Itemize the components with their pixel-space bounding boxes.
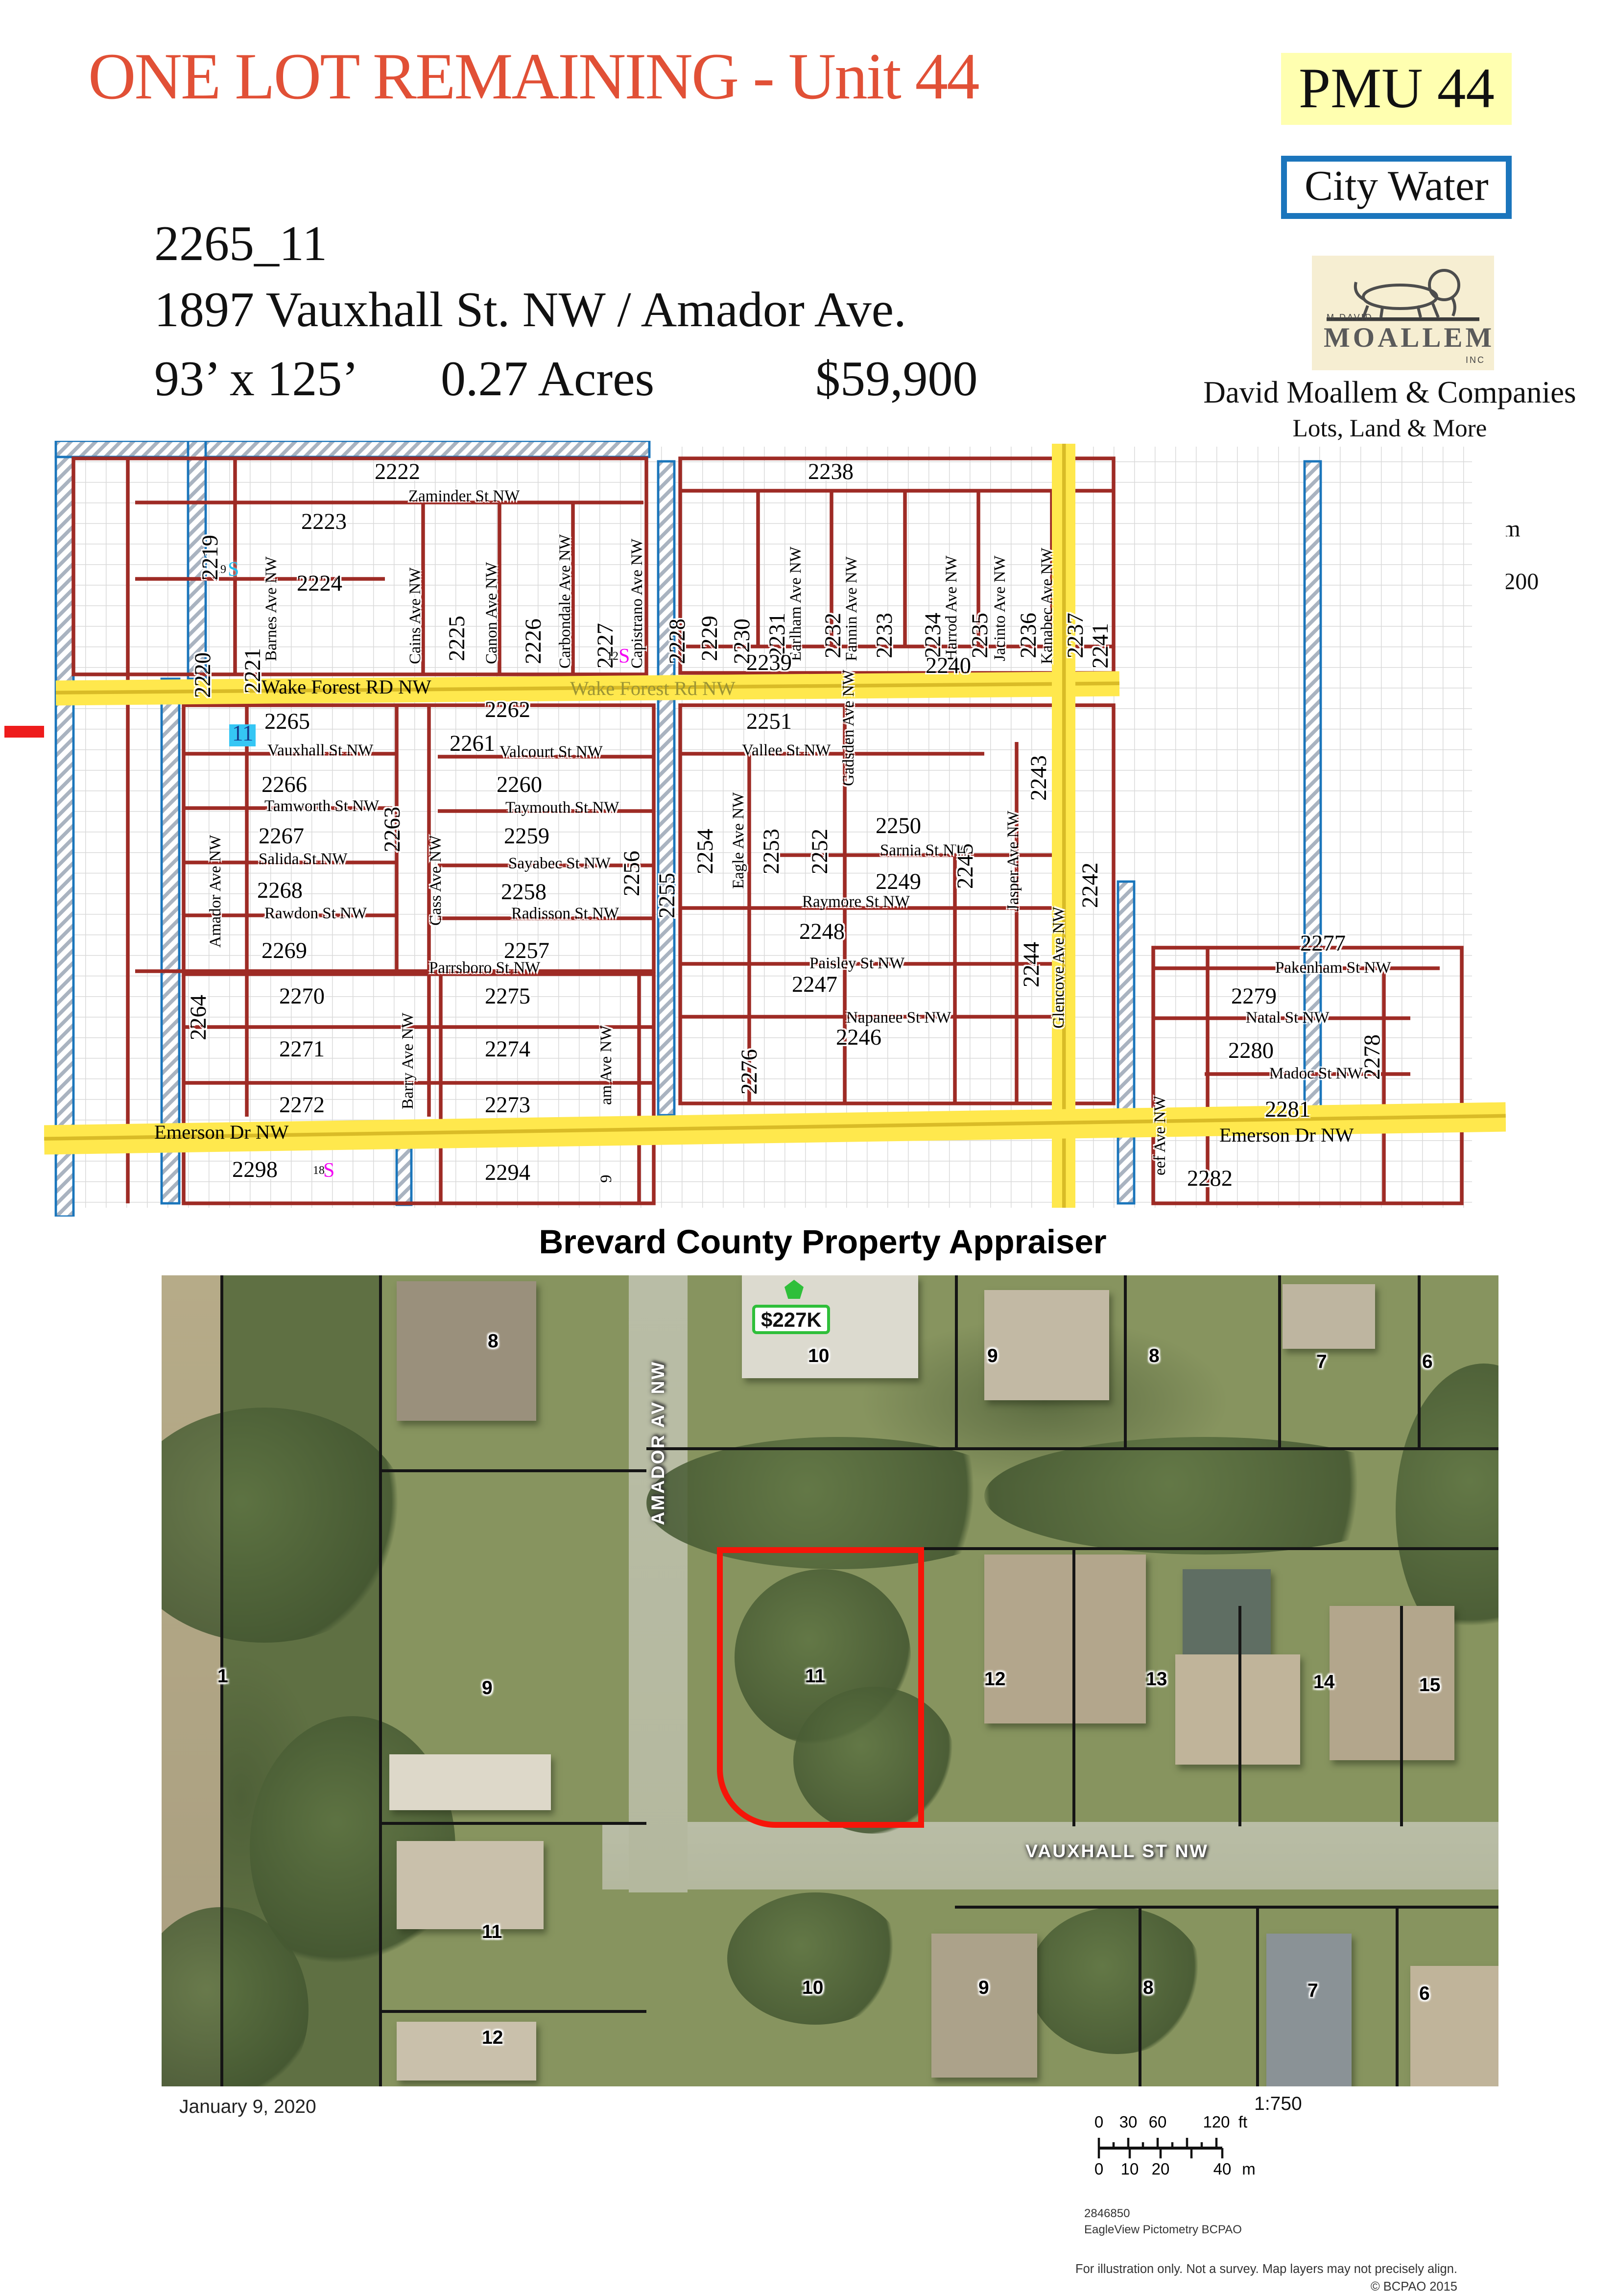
lot-price: $59,900 xyxy=(815,353,978,408)
pmu-badge: PMU 44 xyxy=(1281,53,1512,125)
plat-map-label: 2219 xyxy=(200,535,223,580)
plat-map-label: 2268 xyxy=(257,880,303,903)
aerial-label: VAUXHALL ST NW xyxy=(1025,1842,1209,1861)
plat-map-label: 2269 xyxy=(261,940,307,963)
plat-map-label: 2224 xyxy=(297,573,342,596)
plat-map-label: 2266 xyxy=(261,774,307,797)
plat-map-label: S xyxy=(228,561,239,582)
photo-source: EagleView Pictometry BCPAO xyxy=(1084,2223,1242,2238)
plat-map-label: Jasper Ave NW xyxy=(1006,811,1022,911)
plat-map-label: 2282 xyxy=(1187,1168,1233,1191)
plat-map-label: Canon Ave NW xyxy=(485,562,501,664)
plat-map-label: Gadsden Ave NW xyxy=(842,670,858,786)
plat-map-label: 2261 xyxy=(450,733,495,756)
plat-map-label: 2222 xyxy=(375,461,420,484)
plat-map-label: 2250 xyxy=(876,815,921,838)
plat-map-label: 2294 xyxy=(485,1162,530,1185)
plat-map-label: 2232 xyxy=(823,613,846,658)
plat-map-label: Vallee St NW xyxy=(742,743,831,760)
plat-map-label: 2267 xyxy=(259,826,304,849)
plat-map-label: Harrod Ave NW xyxy=(945,555,961,661)
plat-map-label: Earlham Ave NW xyxy=(789,547,805,661)
plat-map-label: 2272 xyxy=(279,1095,325,1118)
plat-map-label: 2244 xyxy=(1021,942,1044,987)
company-name: David Moallem & Companies xyxy=(1168,375,1612,411)
logo-subtext: M DAVID xyxy=(1327,314,1373,323)
plat-map-label: 2273 xyxy=(485,1095,530,1118)
plat-map-label: 11 xyxy=(229,724,256,746)
lot-dimensions: 93’ x 125’ xyxy=(154,353,358,408)
aerial-label: 1 xyxy=(217,1666,228,1685)
plat-map-label: Vauxhall St NW xyxy=(267,743,373,760)
scale-m-tick: 0 xyxy=(1094,2163,1103,2179)
plat-map-label: 2245 xyxy=(955,843,978,889)
price-badge[interactable]: $227K xyxy=(752,1305,831,1334)
plat-map-label: 2251 xyxy=(746,711,792,734)
plat-map: 2222Zaminder St NW2223222419S22192220222… xyxy=(44,441,1506,1217)
plat-map-label: 2223 xyxy=(301,511,347,534)
plat-map-label: 2262 xyxy=(485,699,530,722)
plat-map-label: Glencove Ave NW xyxy=(1052,907,1068,1028)
plat-map-label: Sayabec St NW xyxy=(508,857,611,873)
plat-map-label: 2242 xyxy=(1080,862,1103,908)
plat-map-label: 2247 xyxy=(792,974,837,997)
plat-map-label: 2277 xyxy=(1300,933,1346,956)
aerial-label: 14 xyxy=(1313,1672,1334,1691)
plat-map-label: Carbondale Ave NW xyxy=(558,534,574,669)
logo-inc: INC xyxy=(1466,357,1485,366)
plat-map-label: 2226 xyxy=(523,619,546,664)
plat-map-label: Valcourt St NW xyxy=(499,745,603,761)
company-logo: M DAVID MOALLEM INC xyxy=(1312,256,1494,370)
plat-map-label: 2255 xyxy=(657,873,680,918)
plat-map-label: eef Ave NW xyxy=(1153,1096,1169,1175)
plat-map-label: 9 xyxy=(599,1175,616,1183)
plat-map-label: Natal St NW xyxy=(1246,1011,1329,1027)
aerial-label: 6 xyxy=(1419,1984,1430,2003)
plat-map-label: 2260 xyxy=(497,774,542,797)
plat-map-label: 12 xyxy=(607,651,618,663)
plat-map-label: 2276 xyxy=(739,1049,762,1095)
plat-map-label: Wake Forest RD NW xyxy=(261,677,431,697)
plat-map-label: S xyxy=(618,648,630,669)
scale-ft-tick: 30 xyxy=(1119,2116,1138,2132)
aerial-label: 6 xyxy=(1422,1352,1433,1371)
property-address: 1897 Vauxhall St. NW / Amador Ave. xyxy=(154,284,906,339)
plat-map-label: S xyxy=(323,1162,334,1183)
disclaimer: For illustration only. Not a survey. Map… xyxy=(881,2260,1457,2296)
aerial-label: 12 xyxy=(984,1669,1005,1688)
scale-m-tick: 10 xyxy=(1121,2163,1139,2179)
plat-map-label: 2233 xyxy=(874,613,897,658)
plat-map-label: 2240 xyxy=(926,655,971,678)
aerial-label: 9 xyxy=(987,1346,998,1365)
scale-ft-ticks: 03060120ft xyxy=(1087,2116,1381,2133)
plat-map-label: Radisson St NW xyxy=(511,907,619,923)
page-title: ONE LOT REMAINING - Unit 44 xyxy=(88,38,978,115)
plat-map-label: Raymore St NW xyxy=(802,895,910,911)
plat-map-label: 2281 xyxy=(1265,1099,1310,1122)
plat-map-label: Cains Ave NW xyxy=(408,568,425,664)
aerial-label: 15 xyxy=(1419,1675,1440,1694)
aerial-photo: $227K 81098761911121314151112109876AMADO… xyxy=(162,1275,1498,2086)
plat-map-label: 2271 xyxy=(279,1039,325,1062)
parcel-id: 2265_11 xyxy=(154,217,327,273)
aerial-label: 8 xyxy=(1149,1346,1160,1365)
aerial-label: 9 xyxy=(978,1978,989,1997)
plat-map-label: Salida St NW xyxy=(259,852,348,868)
plat-map-label: 2280 xyxy=(1228,1040,1274,1063)
photo-credit: 2846850 EagleView Pictometry BCPAO xyxy=(1084,2207,1242,2239)
plat-map-label: 2254 xyxy=(695,829,718,874)
plat-map-label: 2228 xyxy=(667,619,690,664)
lot-acreage: 0.27 Acres xyxy=(441,353,654,408)
photo-date: January 9, 2020 xyxy=(179,2095,316,2117)
aerial-label: 8 xyxy=(488,1331,499,1350)
plat-map-label: Jacinto Ave NW xyxy=(993,555,1009,661)
plat-map-label: Kanabec Ave NW xyxy=(1040,548,1056,664)
aerial-label: 7 xyxy=(1316,1352,1327,1371)
plat-map-label: Pakenham St NW xyxy=(1275,961,1391,977)
scale-bar xyxy=(1087,2136,1381,2160)
map-scale-ratio: 1:750 xyxy=(1175,2092,1381,2114)
plat-map-label: Capistrano Ave NW xyxy=(630,539,646,669)
aerial-label: 8 xyxy=(1143,1978,1154,1997)
flyer-page: ONE LOT REMAINING - Unit 44 PMU 44 City … xyxy=(0,0,1616,2292)
plat-map-label: 2270 xyxy=(279,986,325,1009)
plat-map-label: 2249 xyxy=(876,871,921,894)
company-tagline: Lots, Land & More xyxy=(1168,414,1612,444)
copyright-text: © BCPAO 2015 xyxy=(881,2278,1457,2296)
plat-map-label: Barry Ave NW xyxy=(401,1013,417,1109)
plat-map-label: Barnes Ave NW xyxy=(264,556,281,661)
plat-map-label: 2225 xyxy=(447,616,470,661)
scale-ft-tick: 120 xyxy=(1203,2116,1230,2132)
plat-map-label: 2259 xyxy=(504,826,549,849)
plat-map-label: 2229 xyxy=(699,616,722,661)
plat-map-label: 2298 xyxy=(232,1159,278,1182)
scale-ft-tick: 60 xyxy=(1149,2116,1167,2132)
plat-map-label: 2274 xyxy=(485,1039,530,1062)
plat-map-label: 2241 xyxy=(1090,623,1113,669)
scale-m-tick: 40 xyxy=(1213,2163,1232,2179)
plat-map-label: 2264 xyxy=(188,995,211,1040)
plat-map-label: Cass Ave NW xyxy=(429,835,445,926)
aerial-label: AMADOR AV NW xyxy=(649,1361,668,1525)
plat-map-label: Zaminder St NW xyxy=(408,489,520,505)
plat-map-label: 2265 xyxy=(264,711,310,734)
plat-map-label: 2235 xyxy=(970,613,993,658)
scale-m-tick: 20 xyxy=(1152,2163,1170,2179)
plat-map-label: 2258 xyxy=(501,882,547,905)
plat-map-label: 2238 xyxy=(808,461,854,484)
scale-ft-tick: 0 xyxy=(1094,2116,1103,2132)
aerial-label: 7 xyxy=(1307,1981,1318,2000)
plat-map-label: Rawdon St NW xyxy=(264,907,367,923)
plat-map-label: 2263 xyxy=(382,807,405,852)
plat-map-label: Fannin Ave NW xyxy=(845,556,861,661)
plat-map-label: 2257 xyxy=(504,940,549,963)
plat-map-label: 2234 xyxy=(923,613,946,658)
plat-map-label: 2239 xyxy=(746,652,792,675)
plat-map-label: 2279 xyxy=(1231,986,1277,1009)
appraiser-title: Brevard County Property Appraiser xyxy=(426,1222,1219,1262)
plat-map-label: Amador Ave NW xyxy=(209,835,225,948)
aerial-label: 11 xyxy=(482,1922,502,1941)
plat-map-label: 2236 xyxy=(1018,613,1041,658)
plat-map-label: 2275 xyxy=(485,986,530,1009)
plat-map-label: 2246 xyxy=(836,1027,881,1050)
city-water-badge: City Water xyxy=(1281,156,1512,219)
aerial-label: 10 xyxy=(802,1978,823,1997)
aerial-label: 13 xyxy=(1146,1669,1167,1688)
plat-map-label: 2243 xyxy=(1028,755,1051,801)
plat-map-label: 2256 xyxy=(621,851,644,896)
plat-map-label: Napanee St NW xyxy=(846,1011,951,1027)
scale-m-ticks: 0102040m xyxy=(1087,2163,1381,2180)
logo-name: MOALLEM xyxy=(1324,323,1495,356)
photo-id: 2846850 xyxy=(1084,2207,1242,2223)
plat-map-label: Taymouth St NW xyxy=(505,801,619,817)
plat-map-label: 2248 xyxy=(799,921,845,944)
scale-m-tick: m xyxy=(1242,2163,1256,2179)
plat-map-label: Emerson Dr NW xyxy=(1219,1125,1354,1146)
scale-ft-tick: ft xyxy=(1238,2116,1247,2132)
plat-map-label: 2253 xyxy=(761,829,784,874)
plat-map-label: 2237 xyxy=(1065,613,1088,658)
plat-map-label: Emerson Dr NW xyxy=(154,1123,288,1143)
aerial-label: 10 xyxy=(808,1346,829,1365)
plat-map-label: Wake Forest Rd NW xyxy=(570,679,736,699)
plat-map-label: Eagle Ave NW xyxy=(732,792,748,889)
plat-map-label: 2278 xyxy=(1362,1034,1385,1080)
subject-lot-outline xyxy=(717,1547,924,1828)
plat-map-label: 2220 xyxy=(192,652,215,698)
aerial-label: 12 xyxy=(482,2028,503,2047)
plat-map-label: Paisley St NW xyxy=(809,957,904,973)
aerial-label: 9 xyxy=(482,1678,493,1697)
plat-map-label: Tamworth St NW xyxy=(264,799,379,815)
plat-map-label: Madoc St NW xyxy=(1269,1067,1363,1083)
plat-map-label: 2252 xyxy=(809,829,832,874)
disclaimer-text: For illustration only. Not a survey. Map… xyxy=(881,2260,1457,2278)
aerial-label: 11 xyxy=(805,1666,825,1685)
plat-map-label: am Ave NW xyxy=(599,1025,616,1105)
